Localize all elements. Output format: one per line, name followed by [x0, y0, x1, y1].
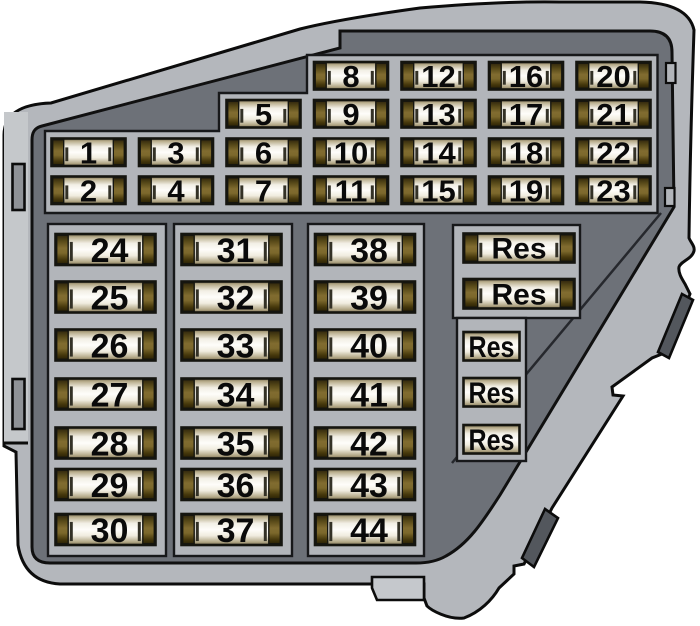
- svg-text:Res: Res: [469, 424, 515, 457]
- svg-text:Res: Res: [469, 377, 515, 410]
- svg-text:39: 39: [350, 279, 388, 317]
- svg-text:18: 18: [509, 135, 543, 170]
- svg-text:44: 44: [350, 512, 388, 550]
- svg-text:32: 32: [217, 279, 255, 317]
- svg-text:43: 43: [350, 467, 388, 505]
- svg-text:Res: Res: [469, 331, 515, 364]
- svg-text:28: 28: [91, 425, 129, 463]
- svg-text:37: 37: [217, 512, 255, 550]
- svg-text:12: 12: [421, 59, 455, 94]
- svg-text:26: 26: [91, 327, 129, 365]
- svg-text:27: 27: [91, 376, 129, 414]
- svg-text:5: 5: [255, 97, 272, 132]
- svg-text:40: 40: [350, 327, 388, 365]
- svg-text:2: 2: [80, 173, 97, 208]
- svg-text:4: 4: [167, 173, 185, 208]
- svg-text:14: 14: [421, 135, 456, 170]
- svg-text:10: 10: [334, 135, 368, 170]
- svg-text:6: 6: [255, 135, 272, 170]
- svg-text:7: 7: [255, 173, 272, 208]
- svg-text:15: 15: [421, 173, 455, 208]
- svg-text:17: 17: [509, 97, 543, 132]
- svg-text:13: 13: [421, 97, 455, 132]
- svg-text:8: 8: [342, 59, 359, 94]
- svg-text:11: 11: [335, 173, 368, 208]
- svg-text:3: 3: [167, 135, 184, 170]
- svg-text:23: 23: [596, 173, 630, 208]
- svg-text:41: 41: [350, 376, 388, 414]
- svg-text:16: 16: [509, 59, 543, 94]
- svg-text:42: 42: [350, 425, 388, 463]
- svg-text:38: 38: [350, 232, 388, 270]
- svg-text:Res: Res: [491, 233, 546, 266]
- svg-text:21: 21: [596, 97, 630, 132]
- svg-text:25: 25: [91, 279, 129, 317]
- svg-text:35: 35: [217, 425, 255, 463]
- svg-text:20: 20: [596, 59, 630, 94]
- svg-text:34: 34: [217, 376, 255, 414]
- svg-text:33: 33: [217, 327, 255, 365]
- svg-text:1: 1: [80, 135, 97, 170]
- svg-text:22: 22: [596, 135, 630, 170]
- svg-text:19: 19: [509, 173, 543, 208]
- svg-text:31: 31: [217, 232, 255, 270]
- svg-text:Res: Res: [491, 278, 546, 311]
- svg-text:29: 29: [91, 467, 129, 505]
- svg-text:36: 36: [217, 467, 255, 505]
- svg-text:30: 30: [91, 512, 129, 550]
- svg-text:9: 9: [342, 97, 359, 132]
- svg-text:24: 24: [91, 232, 129, 270]
